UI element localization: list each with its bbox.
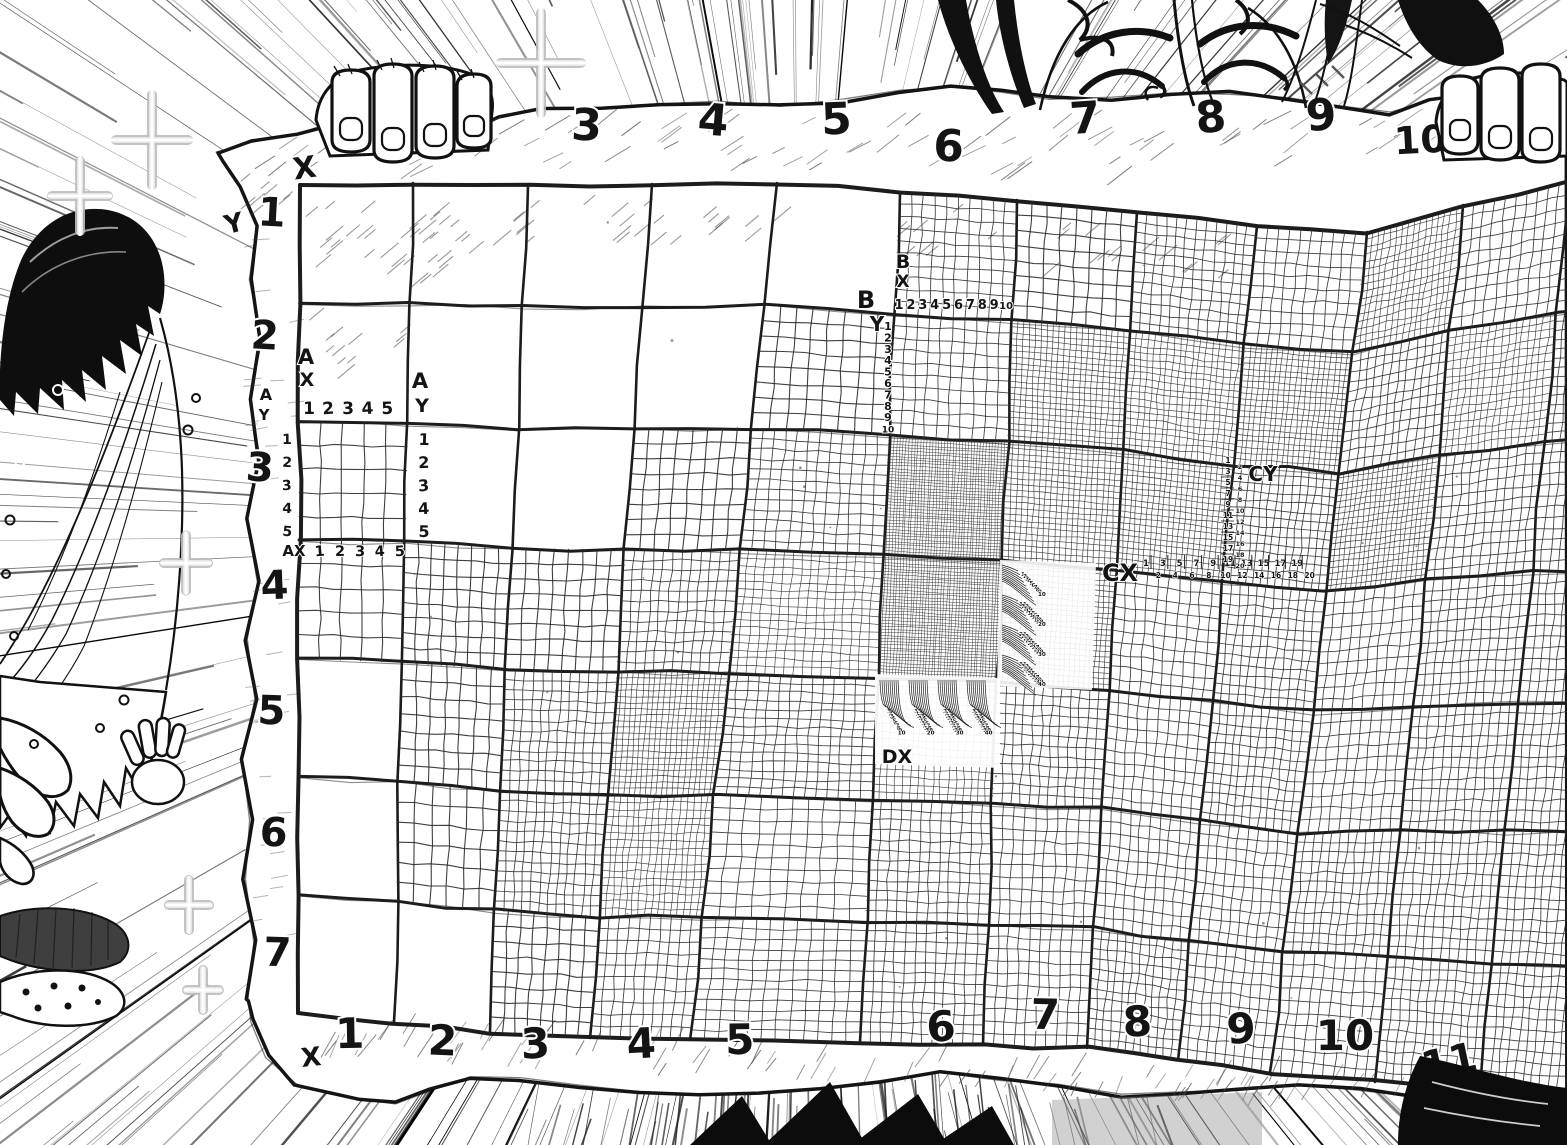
near-hand-finger bbox=[0, 838, 34, 884]
subgrid-c-x-tick: 1 bbox=[1143, 559, 1149, 569]
subgrid-a-y-tick-right: 5 bbox=[418, 522, 429, 541]
bottom-axis-tick: 9 bbox=[1225, 1003, 1257, 1054]
subgrid-a-label-left: A bbox=[260, 385, 273, 404]
subgrid-a-y-tick-right: 4 bbox=[418, 499, 430, 518]
dy-fan-tick: 30 bbox=[1038, 652, 1046, 658]
subgrid-b-x-tick: 7 bbox=[966, 298, 975, 313]
left-axis-tick: 4 bbox=[260, 562, 290, 609]
subgrid-b-label-left: B bbox=[857, 286, 875, 314]
dx-fan-tick: 10 bbox=[898, 731, 906, 737]
hair-spike bbox=[690, 1096, 772, 1145]
subgrid-a2-label: AX bbox=[282, 542, 306, 560]
top-axis-tick: 7 bbox=[1068, 92, 1102, 145]
subgrid-a-x-tick: 1 bbox=[303, 399, 315, 419]
subgrid-a-y-tick-left: 3 bbox=[282, 478, 292, 494]
dx-fan-tick: 20 bbox=[927, 731, 935, 737]
bottom-axis-tick: 7 bbox=[1030, 990, 1060, 1040]
subgrid-a-label-right: A bbox=[412, 369, 429, 393]
subgrid-a-y-tick-left: 4 bbox=[282, 501, 293, 517]
subgrid-c-x-tick: 10 bbox=[1220, 571, 1230, 580]
subgrid-c-x-tick: 19 bbox=[1291, 559, 1303, 569]
subgrid-a-x-tick: 4 bbox=[361, 399, 374, 420]
nail bbox=[1530, 128, 1552, 150]
subgrid-a-y-label-left: Y bbox=[258, 406, 271, 424]
subgrid-a-x-tick: 5 bbox=[381, 399, 393, 419]
subgrid-d-x-label: DX bbox=[882, 746, 913, 768]
left-character-hair bbox=[0, 209, 165, 416]
bottom-axis-tick: 1 bbox=[335, 1009, 365, 1059]
subgrid-c-y-tick: 2 bbox=[1238, 463, 1243, 471]
subgrid-c-x-tick: 9 bbox=[1210, 559, 1216, 569]
subgrid-a-label: A bbox=[298, 345, 315, 369]
palm bbox=[132, 760, 184, 804]
dy-fan-tick: 10 bbox=[1038, 592, 1046, 598]
subgrid-c-x-label: CX bbox=[1102, 559, 1139, 587]
subgrid-c-y-tick: 16 bbox=[1235, 540, 1245, 548]
subgrid-a-y-tick-right: 1 bbox=[418, 430, 430, 449]
subgrid-c-x-tick: 3 bbox=[1160, 559, 1166, 569]
hair-strand bbox=[4, 360, 160, 716]
subgrid-c-x-tick: 8 bbox=[1206, 571, 1211, 580]
subgrid-c-x-tick: 4 bbox=[1173, 571, 1178, 580]
hair-spike bbox=[934, 1106, 1014, 1145]
nail bbox=[1450, 120, 1470, 140]
subgrid-c-y-tick: 1 bbox=[1225, 456, 1230, 465]
finger bbox=[1442, 76, 1478, 154]
fingers bbox=[332, 64, 491, 162]
top-axis-tick: 3 bbox=[570, 99, 602, 151]
subgrid-c-y-tick: 5 bbox=[1225, 478, 1230, 487]
subgrid-a2-x-tick: 1 bbox=[314, 544, 325, 561]
subgrid-b-x-tick: 10 bbox=[999, 301, 1013, 312]
subgrid-a-y-tick-left: 2 bbox=[282, 455, 292, 471]
subgrid-a2-x-tick: 2 bbox=[335, 544, 345, 560]
body-outline bbox=[160, 318, 182, 690]
top-axis-tick: 6 bbox=[932, 120, 965, 172]
subgrid-b-y-tick: 10 bbox=[882, 426, 895, 436]
subgrid-c-y-tick: 10 bbox=[1235, 507, 1245, 515]
subgrid-b-x-tick: 6 bbox=[954, 298, 963, 313]
subgrid-b-x-label: X bbox=[896, 272, 909, 292]
subgrid-c-x-tick: 16 bbox=[1271, 571, 1281, 580]
subgrid-c-y-tick: 13 bbox=[1223, 522, 1233, 531]
top-axis-tick: 9 bbox=[1304, 89, 1338, 142]
bottom-axis-tick: 5 bbox=[725, 1015, 755, 1064]
top-axis-corner-label: X bbox=[291, 150, 319, 188]
subgrid-c-y-tick: 8 bbox=[1238, 496, 1243, 504]
nail bbox=[1489, 126, 1511, 148]
subgrid-c-y-tick: 19 bbox=[1223, 555, 1233, 564]
subgrid-b-x-tick: 4 bbox=[930, 298, 939, 313]
nail bbox=[464, 116, 484, 136]
left-axis-tick: 2 bbox=[250, 312, 280, 360]
subgrid-a-y-tick-right: 2 bbox=[418, 453, 430, 472]
subgrid-c-y-tick: 3 bbox=[1225, 467, 1230, 476]
subgrid-b-x-tick: 1 bbox=[894, 298, 903, 313]
left-axis-tick: 6 bbox=[259, 809, 289, 856]
subgrid-b-y-tick: 9 bbox=[884, 411, 892, 424]
subgrid-c-y-tick: 14 bbox=[1235, 529, 1245, 537]
subgrid-a-x-tick: 3 bbox=[342, 399, 354, 419]
subgrid-b-label-top: B bbox=[896, 251, 910, 273]
bottom-axis-tick: 6 bbox=[925, 1001, 957, 1052]
subgrid-a2-x-tick: 3 bbox=[355, 544, 365, 560]
bottom-axis-tick: 8 bbox=[1122, 996, 1153, 1046]
subgrid-a-y-tick-left: 5 bbox=[282, 524, 293, 541]
subgrid-b-x-tick: 2 bbox=[906, 298, 915, 313]
top-axis-tick: 4 bbox=[696, 94, 731, 147]
screentone-band bbox=[1052, 1092, 1262, 1145]
subgrid-c-x-tick: 14 bbox=[1254, 571, 1264, 580]
closed-left-eye bbox=[1082, 72, 1162, 92]
subgrid-a2-x-tick: 4 bbox=[374, 544, 385, 561]
subgrid-a-y-label-right: Y bbox=[414, 395, 429, 417]
subgrid-c-y-tick: 18 bbox=[1235, 551, 1245, 559]
subgrid-c-y-label: CY bbox=[1248, 462, 1278, 486]
subgrid-b-x-tick: 8 bbox=[978, 298, 987, 313]
subgrid-c-x-tick: 12 bbox=[1237, 571, 1247, 580]
bottom-axis-tick: 4 bbox=[625, 1018, 657, 1068]
hair-mass bbox=[1398, 0, 1504, 66]
nail bbox=[382, 128, 404, 150]
left-axis-tick: 3 bbox=[244, 444, 275, 492]
subgrid-c-x-tick: 2 bbox=[1156, 571, 1161, 580]
subgrid-c-x-tick: 20 bbox=[1304, 571, 1314, 580]
left-axis-tick: 1 bbox=[257, 189, 287, 236]
subgrid-a-x-tick: 2 bbox=[321, 399, 334, 420]
subgrid-c-y-tick: 17 bbox=[1223, 544, 1233, 553]
subgrid-c-x-tick: 5 bbox=[1177, 559, 1183, 569]
subgrid-c-y-tick: 4 bbox=[1238, 474, 1243, 482]
dy-fan-tick: 40 bbox=[1038, 682, 1046, 688]
dx-fan-tick: 40 bbox=[985, 731, 993, 737]
subgrid-b-x-tick: 3 bbox=[918, 298, 927, 313]
scene-canvas: 1234567891011121314151617181920212223242… bbox=[0, 0, 1567, 1145]
subgrid-a-y-tick-left: 1 bbox=[282, 432, 292, 448]
dy-fan-backdrop bbox=[997, 560, 1096, 690]
bottom-axis-corner-label: X bbox=[300, 1042, 323, 1074]
subgrid-a-y-tick-right: 3 bbox=[417, 476, 430, 496]
subgrid-c-y-tick: 11 bbox=[1223, 511, 1233, 520]
subgrid-c-x-tick: 18 bbox=[1288, 571, 1298, 580]
subgrid-c-x-tick: 6 bbox=[1189, 571, 1194, 580]
top-left-hand bbox=[316, 58, 492, 162]
bottom-axis-tick: 2 bbox=[427, 1015, 458, 1065]
manga-panel: 1234567891011121314151617181920212223242… bbox=[0, 0, 1567, 1145]
spotted-foot bbox=[0, 970, 124, 1025]
subgrid-b-x-tick: 9 bbox=[990, 298, 999, 313]
closed-right-eye bbox=[1204, 63, 1284, 82]
subgrid-c-y-tick: 20 bbox=[1235, 562, 1245, 570]
left-axis-label: Y bbox=[220, 207, 248, 241]
subgrid-c-x-tick: 17 bbox=[1274, 559, 1286, 569]
subgrid-b-y-label: Y bbox=[869, 312, 885, 336]
dx-fan-tick: 30 bbox=[956, 731, 964, 737]
subgrid-c-x-tick: 15 bbox=[1258, 559, 1270, 569]
subgrid-b-x-tick: 5 bbox=[942, 298, 951, 313]
top-axis-tick: 5 bbox=[820, 93, 853, 145]
bottom-axis-tick: 3 bbox=[520, 1018, 551, 1068]
subgrid-c-y-tick: 12 bbox=[1235, 518, 1244, 526]
left-axis-tick: 5 bbox=[257, 688, 286, 735]
subgrid-c-y-tick: 15 bbox=[1223, 533, 1233, 542]
subgrid-a2-x-tick: 5 bbox=[394, 544, 405, 560]
subgrid-c-y-tick: 7 bbox=[1225, 489, 1230, 498]
subgrid-c-y-tick: 6 bbox=[1238, 485, 1243, 493]
subgrid-c-x-tick: 7 bbox=[1193, 559, 1199, 569]
subgrid-a-x-label: X bbox=[300, 369, 315, 391]
bottom-axis-tick: 10 bbox=[1316, 1011, 1375, 1060]
dy-fan-tick: 20 bbox=[1038, 622, 1046, 628]
left-axis-tick: 7 bbox=[263, 930, 292, 977]
nail bbox=[340, 118, 362, 140]
nail bbox=[424, 124, 446, 146]
subgrid-c-y-tick: 9 bbox=[1225, 500, 1230, 509]
